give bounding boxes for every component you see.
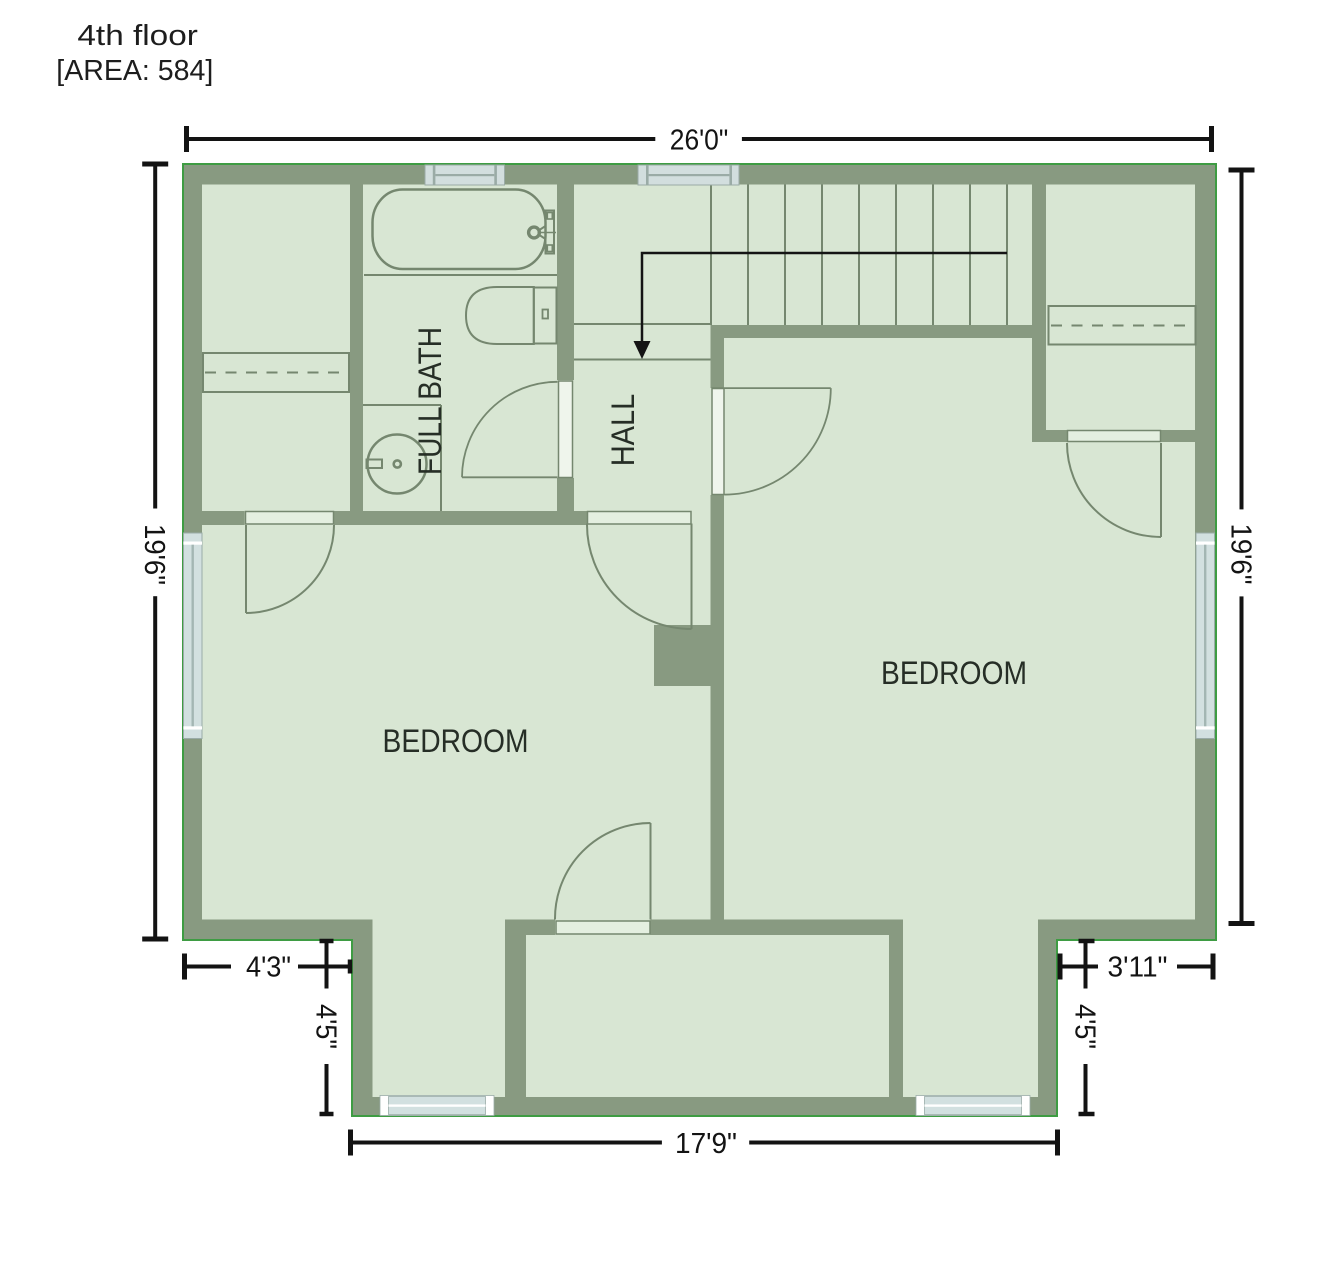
svg-text:HALL: HALL [605, 394, 641, 467]
svg-text:FULL BATH: FULL BATH [412, 327, 448, 475]
svg-text:4'5": 4'5" [1068, 1004, 1100, 1049]
svg-text:3'11": 3'11" [1108, 952, 1168, 984]
svg-text:17'9": 17'9" [675, 1128, 737, 1160]
svg-text:[AREA: 584]: [AREA: 584] [56, 55, 213, 87]
svg-text:19'6": 19'6" [138, 524, 170, 585]
svg-text:4th floor: 4th floor [77, 20, 198, 52]
svg-text:BEDROOM: BEDROOM [881, 655, 1027, 691]
svg-text:BEDROOM: BEDROOM [383, 723, 529, 759]
svg-text:26'0": 26'0" [670, 124, 729, 156]
svg-text:4'5": 4'5" [309, 1004, 341, 1049]
svg-text:19'6": 19'6" [1224, 524, 1256, 585]
svg-text:4'3": 4'3" [246, 952, 291, 984]
